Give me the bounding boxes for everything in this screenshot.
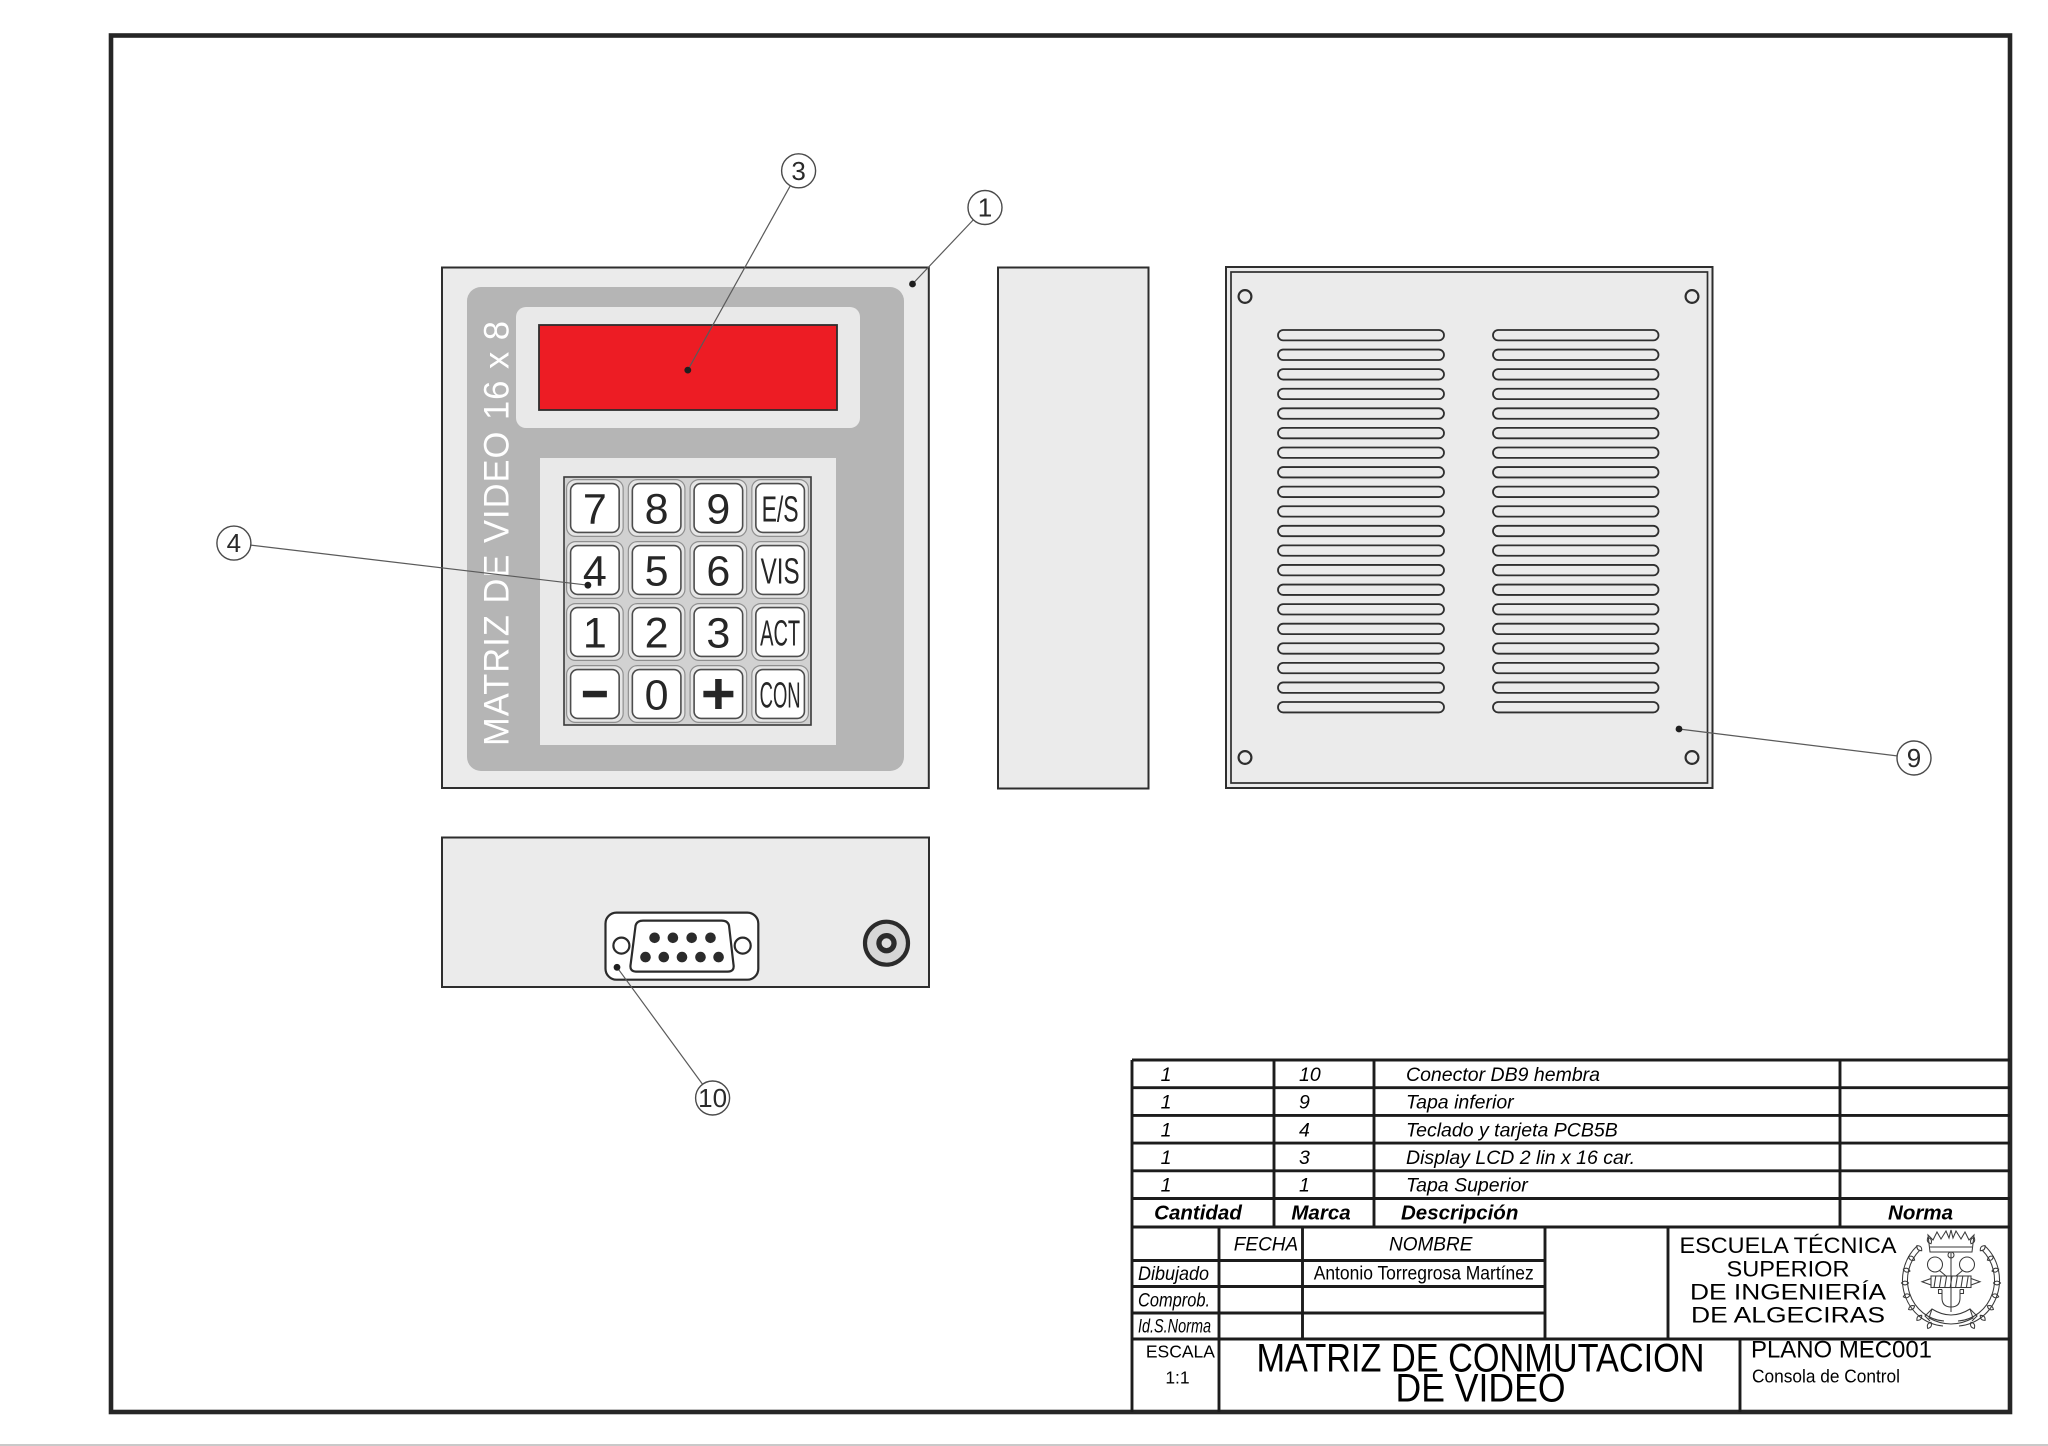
svg-text:Tapa inferior: Tapa inferior (1406, 1092, 1515, 1114)
svg-text:1: 1 (1161, 1064, 1172, 1086)
svg-text:Teclado y tarjeta PCB5B: Teclado y tarjeta PCB5B (1406, 1119, 1618, 1141)
svg-text:1: 1 (1299, 1175, 1310, 1197)
svg-text:3: 3 (706, 610, 730, 658)
svg-text:7: 7 (583, 486, 607, 534)
svg-text:Cantidad: Cantidad (1154, 1201, 1242, 1224)
svg-text:Norma: Norma (1888, 1201, 1953, 1224)
svg-text:Id.S.Norma: Id.S.Norma (1138, 1317, 1211, 1338)
svg-text:Antonio Torregrosa Martínez: Antonio Torregrosa Martínez (1314, 1264, 1534, 1285)
svg-text:5: 5 (645, 548, 669, 596)
svg-text:Dibujado: Dibujado (1138, 1264, 1209, 1285)
svg-text:VIS: VIS (761, 551, 800, 592)
svg-text:SUPERIOR: SUPERIOR (1727, 1257, 1850, 1282)
svg-text:Display LCD 2 lin x 16 car.: Display LCD 2 lin x 16 car. (1406, 1147, 1635, 1169)
svg-text:FECHA: FECHA (1234, 1235, 1298, 1256)
svg-text:DE ALGECIRAS: DE ALGECIRAS (1691, 1303, 1885, 1328)
svg-text:Tapa Superior: Tapa Superior (1406, 1175, 1529, 1197)
svg-text:ACT: ACT (760, 613, 800, 654)
svg-text:1: 1 (583, 610, 607, 658)
svg-text:4: 4 (1299, 1119, 1310, 1141)
svg-text:10: 10 (698, 1083, 727, 1113)
svg-text:9: 9 (706, 486, 730, 534)
svg-text:E/S: E/S (762, 489, 799, 530)
svg-text:Descripción: Descripción (1401, 1201, 1518, 1224)
svg-text:3: 3 (791, 156, 805, 186)
svg-text:1: 1 (1161, 1175, 1172, 1197)
svg-text:4: 4 (227, 528, 241, 558)
svg-text:8: 8 (645, 486, 669, 534)
svg-text:Marca: Marca (1291, 1201, 1350, 1224)
svg-text:Conector DB9 hembra: Conector DB9 hembra (1406, 1064, 1600, 1086)
svg-text:Consola de Control: Consola de Control (1752, 1366, 1900, 1387)
svg-text:9: 9 (1907, 743, 1921, 773)
svg-text:9: 9 (1299, 1092, 1310, 1114)
svg-text:Comprob.: Comprob. (1138, 1291, 1210, 1312)
svg-text:NOMBRE: NOMBRE (1389, 1235, 1473, 1256)
svg-text:1: 1 (978, 193, 992, 223)
svg-text:DE INGENIERÍA: DE INGENIERÍA (1690, 1280, 1886, 1305)
svg-text:2: 2 (645, 610, 669, 658)
svg-text:1:1: 1:1 (1165, 1368, 1189, 1388)
svg-text:1: 1 (1161, 1119, 1172, 1141)
svg-text:ESCALA: ESCALA (1146, 1342, 1215, 1362)
svg-text:0: 0 (645, 672, 669, 720)
svg-text:3: 3 (1299, 1147, 1310, 1169)
svg-text:DE VIDEO: DE VIDEO (1396, 1367, 1566, 1411)
svg-text:6: 6 (706, 548, 730, 596)
svg-text:CON: CON (760, 675, 801, 716)
svg-text:10: 10 (1299, 1064, 1321, 1086)
svg-text:MATRIZ DE VIDEO 16 x 8: MATRIZ DE VIDEO 16 x 8 (478, 320, 517, 746)
svg-text:1: 1 (1161, 1092, 1172, 1114)
svg-text:PLANO MEC001: PLANO MEC001 (1751, 1337, 1932, 1364)
svg-text:1: 1 (1161, 1147, 1172, 1169)
svg-text:ESCUELA TÉCNICA: ESCUELA TÉCNICA (1680, 1233, 1897, 1258)
